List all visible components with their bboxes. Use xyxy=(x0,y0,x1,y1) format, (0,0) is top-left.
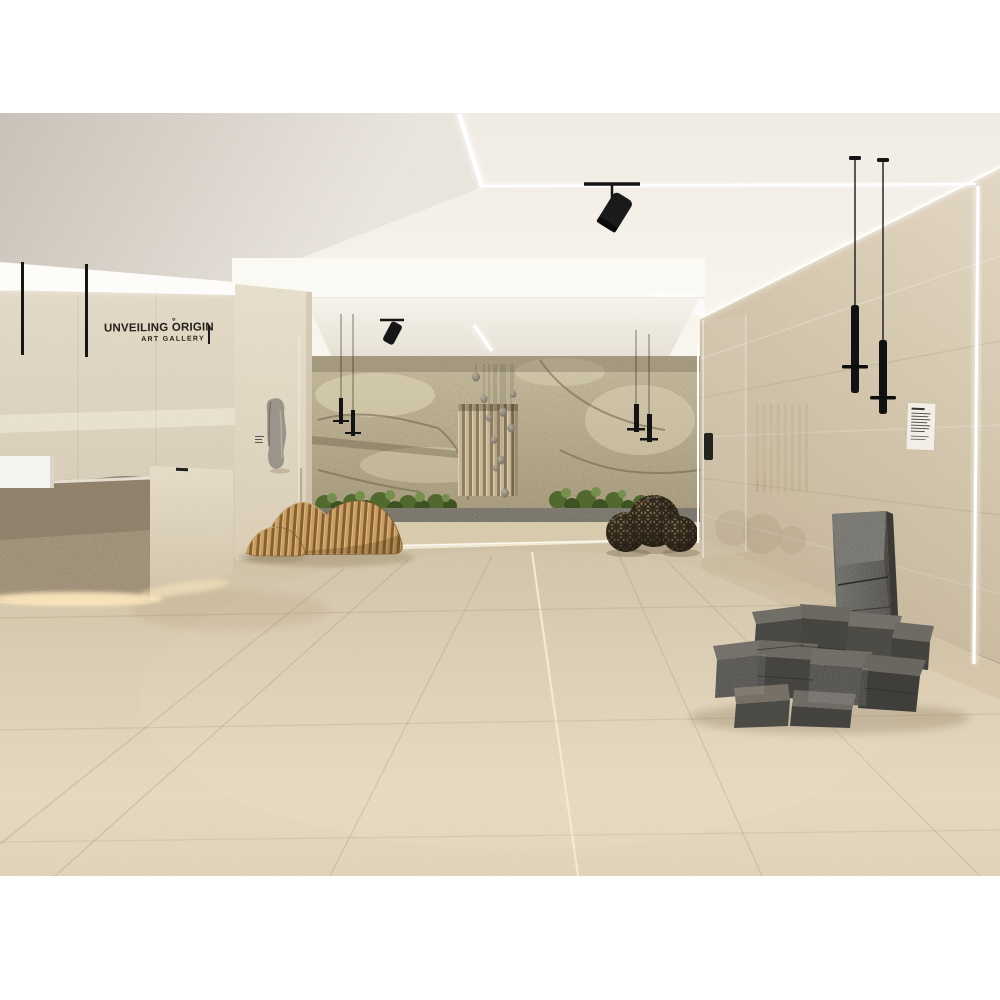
artwork-canvas: UNVEILING ORIGIN ° ART GALLERY xyxy=(0,0,1000,1000)
wall-plaque xyxy=(906,403,936,451)
glass-clamp xyxy=(704,433,713,460)
woven-sphere xyxy=(662,516,698,552)
pendant-rod xyxy=(85,264,88,357)
desk-counter-object xyxy=(0,456,54,488)
pendant-rod xyxy=(21,262,24,355)
alcove-inner-ceiling xyxy=(305,298,700,362)
scene-render xyxy=(0,0,1000,1000)
